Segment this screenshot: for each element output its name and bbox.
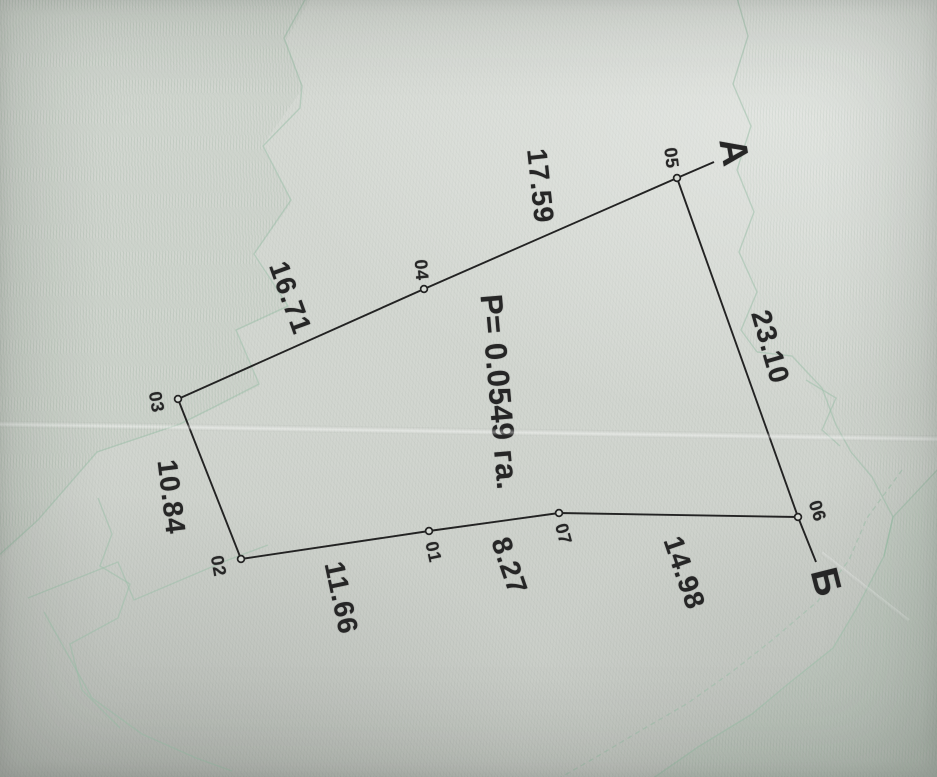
- point-number-label: 07: [550, 521, 576, 547]
- point-number-label: 02: [206, 554, 230, 578]
- corner-letter-label: А: [709, 135, 756, 170]
- point-number-label: 06: [804, 498, 830, 524]
- side-length-label: 14.98: [657, 532, 712, 613]
- side-length-label: 16.71: [262, 257, 318, 338]
- side-length-label: 23.10: [744, 307, 795, 388]
- point-number-label: 03: [144, 390, 168, 414]
- area-label: P= 0.0549 га.: [473, 293, 526, 491]
- side-length-label: 10.84: [151, 458, 192, 536]
- side-length-label: 8.27: [484, 533, 533, 599]
- survey-plan-photo: P= 0.0549 га. 11.6610.8416.7117.5923.101…: [0, 0, 937, 777]
- side-length-label: 11.66: [318, 559, 365, 638]
- point-number-label: 01: [421, 540, 446, 565]
- point-number-label: 05: [659, 146, 682, 169]
- plan-labels: P= 0.0549 га. 11.6610.8416.7117.5923.101…: [0, 0, 937, 777]
- side-length-label: 17.59: [520, 147, 560, 225]
- corner-letter-label: Б: [801, 564, 849, 601]
- point-number-label: 04: [410, 259, 433, 282]
